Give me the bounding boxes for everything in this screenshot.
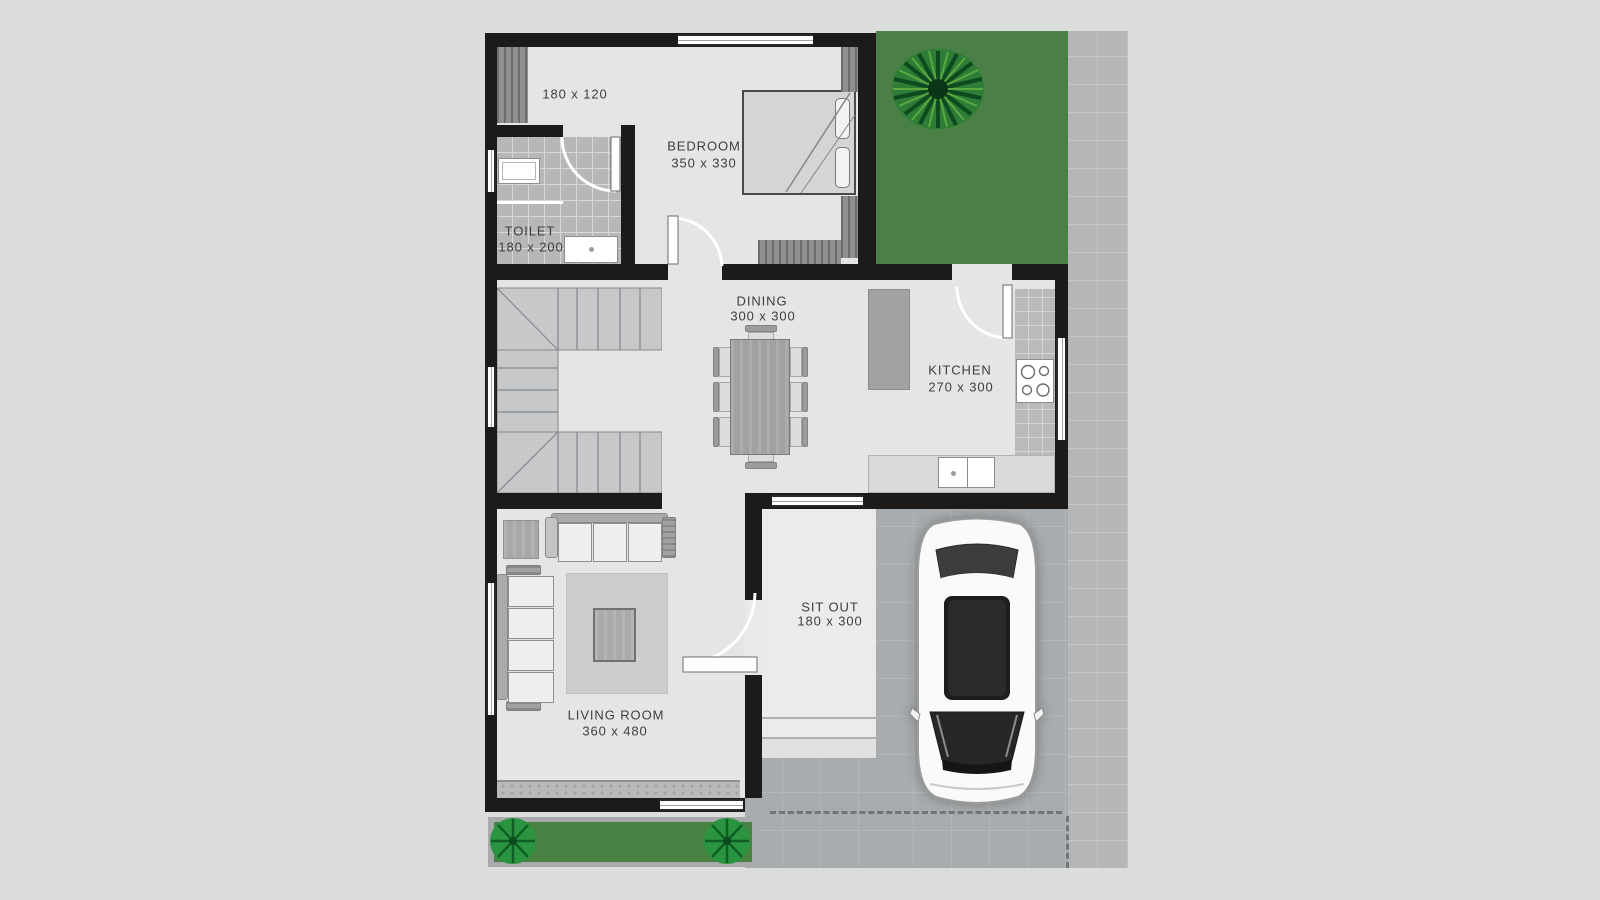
utility-shaft [497,47,528,123]
pillow [835,98,850,139]
wall [497,264,668,280]
shower-tray [564,236,618,263]
dining-table [730,339,790,455]
plot-boundary-dashed [1066,816,1069,868]
staircase [497,280,662,493]
window [486,367,496,427]
verandah-strip [490,780,740,798]
bedroom-label: BEDROOM [667,139,741,154]
dining-chair [802,347,808,377]
sit-out-step [762,737,876,758]
toilet-dims: 180 x 200 [498,240,563,255]
kitchen-partition-counter [868,289,910,390]
dining-chair [790,417,802,447]
window [486,583,496,715]
wall [621,125,635,264]
kitchen-dims: 270 x 300 [928,380,993,395]
sofa-cushion [508,608,554,639]
sofa-cushion [508,672,554,703]
bedroom-dims: 350 x 330 [671,156,736,171]
bush-icon [703,817,751,865]
living-room-label: LIVING ROOM [568,708,665,723]
sofa-back [496,574,508,700]
wall [497,125,563,137]
wall [745,675,762,798]
living-room-dims: 360 x 480 [582,724,647,739]
paving-strip [1068,31,1128,868]
wall [745,509,762,600]
sofa-armrest [545,517,558,558]
sofa-cushion [593,523,627,562]
car [910,516,1044,806]
window [486,150,496,192]
dining-chair [790,382,802,412]
wall [858,33,876,280]
sofa-cushion [508,576,554,607]
sofa-armrest [662,517,676,558]
open-area-dims: 180 x 120 [542,87,607,102]
sofa-cushion [508,640,554,671]
floor-patch-sitout-door [745,600,762,675]
wall [722,264,952,280]
toilet-partition [497,201,563,204]
window [660,799,743,811]
bush-icon [489,817,537,865]
plot-boundary-dashed [770,811,1062,814]
sit-out-dims: 180 x 300 [797,614,862,629]
floor-plan-canvas: 180 x 120 TOILET 180 x 200 BEDROOM 350 x… [0,0,1600,900]
dining-label: DINING [737,294,788,309]
window [1056,338,1067,440]
toilet-label: TOILET [505,224,556,239]
dining-chair [790,347,802,377]
sofa-cushion [558,523,592,562]
stove [1016,359,1054,403]
floor-patch-kitchen-door [952,264,1012,280]
floor-sit-out [762,509,876,758]
toilet-sink [498,158,540,184]
wall [485,493,662,509]
window [678,34,813,46]
dining-chair [745,325,777,332]
wardrobe [758,240,841,264]
coffee-table [593,608,636,662]
window [772,495,863,507]
side-table [503,520,539,559]
tree-icon [890,46,986,132]
pillow [835,147,850,188]
dining-chair [745,462,777,469]
sit-out-label: SIT OUT [801,600,858,615]
dining-dims: 300 x 300 [730,309,795,324]
sofa-back [551,513,668,523]
sofa-cushion [628,523,662,562]
kitchen-label: KITCHEN [928,363,991,378]
sit-out-step-line [762,717,876,719]
wardrobe [841,47,858,92]
wardrobe [841,196,858,258]
kitchen-sink [938,457,995,488]
sofa-armrest [506,565,541,575]
floor-patch-passage [662,493,745,509]
dining-chair [802,417,808,447]
dining-chair [802,382,808,412]
